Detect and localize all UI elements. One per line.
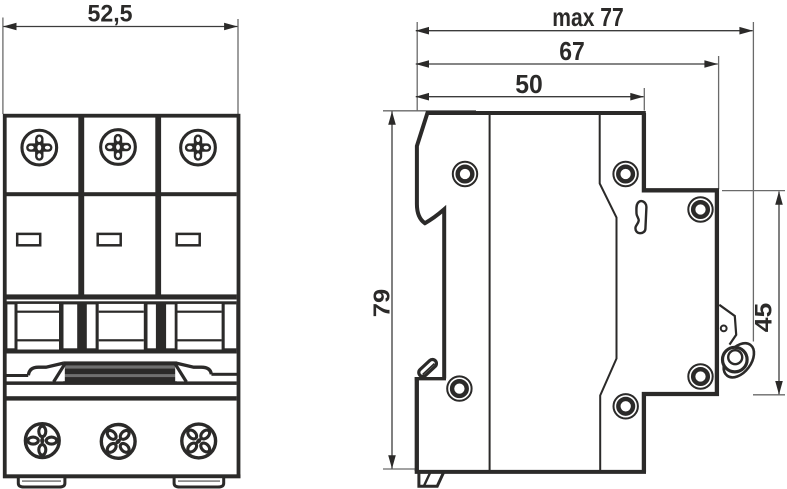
svg-text:52,5: 52,5	[88, 0, 133, 27]
svg-text:79: 79	[369, 289, 395, 318]
svg-text:67: 67	[559, 36, 585, 66]
svg-text:45: 45	[751, 303, 778, 333]
svg-text:max 77: max 77	[552, 2, 624, 32]
svg-text:50: 50	[515, 69, 543, 99]
